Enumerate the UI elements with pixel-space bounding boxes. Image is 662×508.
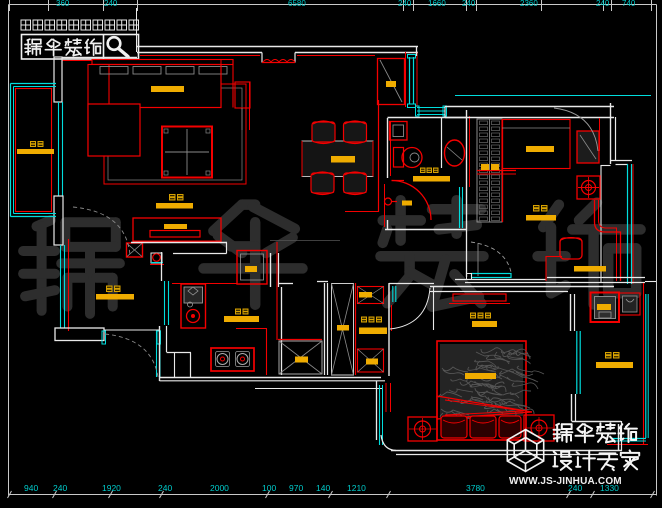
svg-text:1660: 1660 <box>428 0 446 8</box>
svg-text:940: 940 <box>24 483 38 493</box>
svg-text:1920: 1920 <box>102 483 121 493</box>
svg-text:3780: 3780 <box>466 483 485 493</box>
svg-text:1210: 1210 <box>347 483 366 493</box>
svg-text:140: 140 <box>316 483 330 493</box>
svg-text:240: 240 <box>158 483 172 493</box>
svg-text:240: 240 <box>104 0 118 8</box>
svg-text:240: 240 <box>596 0 610 8</box>
svg-text:2360: 2360 <box>520 0 538 8</box>
svg-text:100: 100 <box>262 483 276 493</box>
svg-text:360: 360 <box>56 0 70 8</box>
svg-text:240: 240 <box>462 0 476 8</box>
svg-text:740: 740 <box>622 0 636 8</box>
svg-text:2000: 2000 <box>210 483 229 493</box>
svg-text:WWW.JS-JINHUA.COM: WWW.JS-JINHUA.COM <box>509 476 622 487</box>
svg-text:240: 240 <box>398 0 412 8</box>
svg-text:970: 970 <box>289 483 303 493</box>
svg-text:6580: 6580 <box>288 0 306 8</box>
svg-text:240: 240 <box>53 483 67 493</box>
